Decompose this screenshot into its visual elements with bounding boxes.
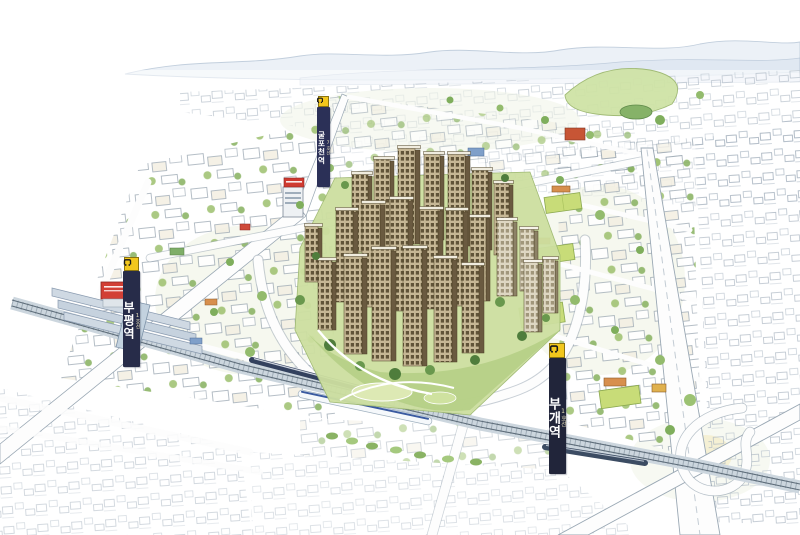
dome-building xyxy=(620,105,652,119)
station-name-label: 부평역 xyxy=(123,301,135,340)
brick-building xyxy=(565,128,585,140)
birdseye-illustration xyxy=(0,0,800,535)
station-sign-bugae: 1호선 부개역 xyxy=(548,343,566,474)
apartment-complex xyxy=(295,146,560,416)
subway-logo-icon xyxy=(124,257,139,271)
station-name-label: 부개역 xyxy=(547,397,560,439)
station-name-label: 굴포천역 xyxy=(318,131,326,165)
subway-logo-icon xyxy=(549,343,565,358)
subway-logo-icon xyxy=(318,96,329,107)
department-store xyxy=(283,178,304,217)
illustration-canvas: 7호선 굴포천역 1호선 부평역 1호선 부개역 xyxy=(0,0,800,535)
red-billboard xyxy=(284,178,304,187)
station-sign-bupyeong: 1호선 부평역 xyxy=(122,257,140,367)
station-sign-north: 7호선 굴포천역 xyxy=(316,96,330,187)
station-sign-panel: 7호선 굴포천역 xyxy=(317,107,330,187)
station-sign-panel: 1호선 부평역 xyxy=(123,271,140,367)
station-sign-panel: 1호선 부개역 xyxy=(549,358,566,474)
